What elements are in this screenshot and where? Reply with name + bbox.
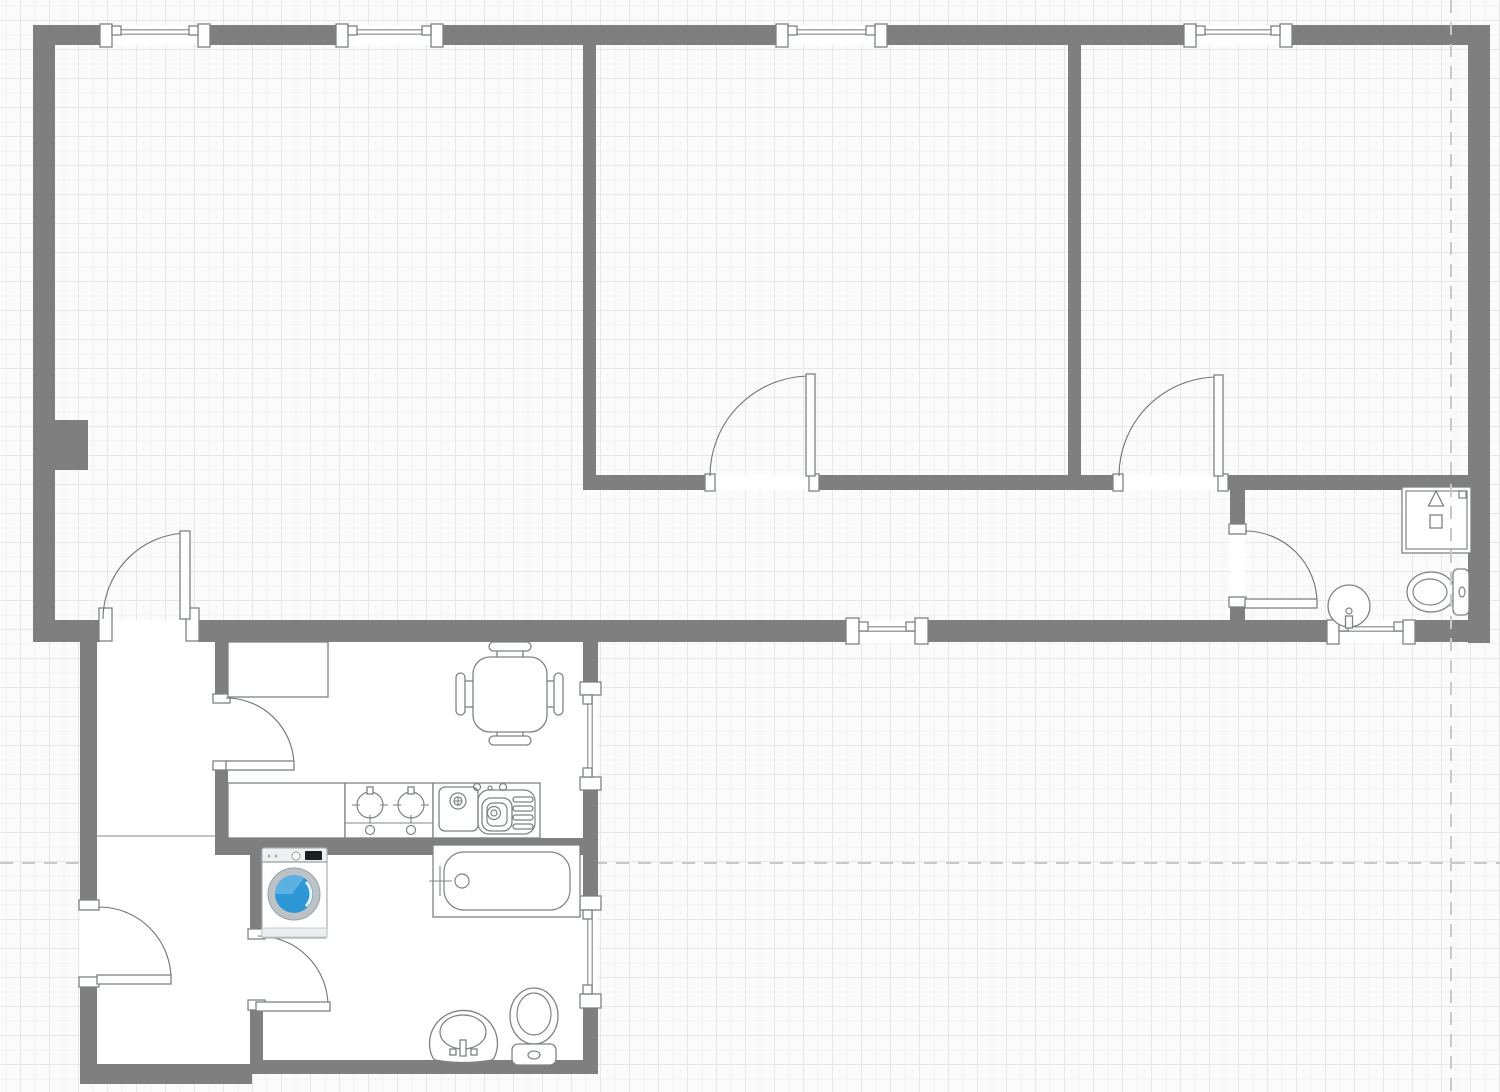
kitchen-cabinet[interactable] [228, 642, 328, 697]
wall-bath-west-lower[interactable] [250, 1010, 263, 1064]
wc-toilet[interactable] [1407, 569, 1469, 615]
door-bedroom2[interactable] [1113, 375, 1228, 491]
door-wc[interactable] [1229, 524, 1317, 608]
wall-left[interactable] [33, 25, 55, 642]
washing-machine[interactable] [262, 848, 327, 938]
wall-bottom-main[interactable] [33, 620, 1490, 642]
bathroom-toilet[interactable] [510, 988, 558, 1065]
wall-vestibule-south[interactable] [80, 1064, 252, 1084]
floorplan-svg [0, 0, 1500, 1092]
wall-pillar[interactable] [55, 420, 88, 470]
wall-vestibule-west[interactable] [80, 640, 97, 1084]
vestibule-lower-floor [97, 838, 250, 1064]
wc-washbasin[interactable] [1328, 585, 1370, 628]
wall-bath-west-upper[interactable] [250, 840, 263, 935]
bathtub[interactable] [429, 845, 580, 917]
kitchen-counter[interactable] [228, 783, 345, 838]
window-bathroom[interactable] [580, 896, 601, 1008]
kitchen-sink[interactable] [433, 783, 540, 838]
window-living-1[interactable] [100, 24, 210, 47]
shower[interactable] [1402, 487, 1471, 553]
window-living-2[interactable] [336, 24, 443, 47]
wall-interior-west[interactable] [583, 45, 596, 475]
window-bedroom2[interactable] [1184, 24, 1292, 47]
window-kitchen[interactable] [580, 682, 601, 790]
door-hall-entry[interactable] [99, 531, 199, 642]
window-hall[interactable] [846, 618, 928, 644]
floorplan-canvas[interactable] [0, 0, 1500, 1092]
window-bedroom1[interactable] [776, 24, 887, 47]
door-bedroom1[interactable] [705, 374, 819, 491]
vestibule-upper-floor [97, 640, 215, 840]
stove[interactable] [345, 783, 433, 838]
wall-interior-east[interactable] [1068, 45, 1081, 475]
